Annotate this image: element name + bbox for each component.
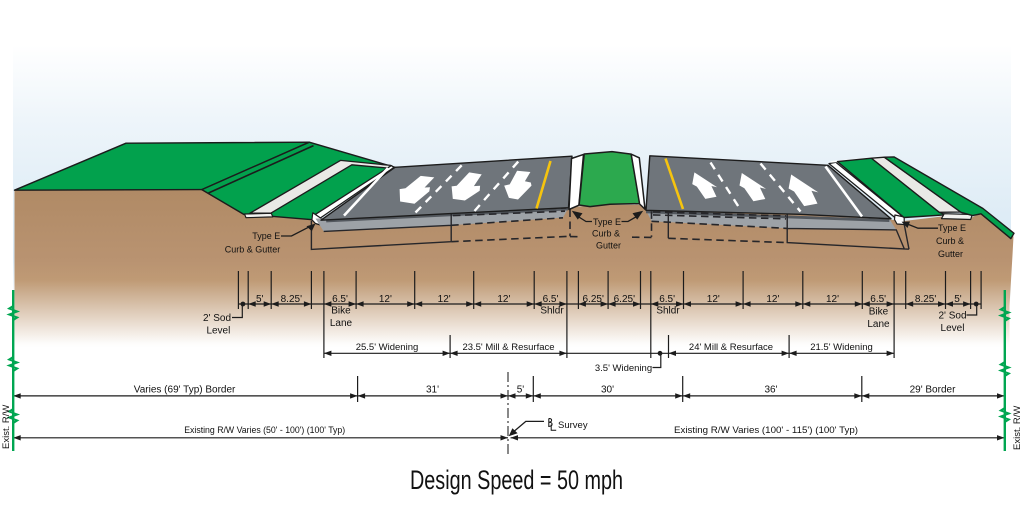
svg-text:31': 31' [426,385,439,396]
svg-text:12': 12' [497,294,510,305]
svg-text:Curb &: Curb & [592,229,620,239]
svg-text:12': 12' [707,294,720,305]
svg-text:8.25': 8.25' [281,294,302,305]
svg-text:Design Speed = 50 mph: Design Speed = 50 mph [410,465,623,495]
svg-text:6.25': 6.25' [583,294,604,305]
svg-text:Type E: Type E [938,223,966,233]
svg-text:Gutter: Gutter [938,249,963,259]
svg-text:Existing R/W Varies (50' - 100: Existing R/W Varies (50' - 100') (100' T… [184,425,345,436]
svg-text:Type E: Type E [593,217,621,227]
svg-text:6.5': 6.5' [332,294,348,305]
svg-text:Curb &: Curb & [936,236,964,246]
svg-text:8.25': 8.25' [915,294,936,305]
svg-text:29' Border: 29' Border [910,385,956,396]
svg-text:3.5' Widening: 3.5' Widening [595,363,652,374]
svg-text:Varies (69' Typ) Border: Varies (69' Typ) Border [134,385,236,396]
svg-text:5': 5' [517,385,525,396]
svg-text:5': 5' [954,294,962,305]
svg-text:12': 12' [379,294,392,305]
svg-text:Shldr: Shldr [540,306,564,317]
svg-text:Curb & Gutter: Curb & Gutter [225,245,281,255]
svg-text:5': 5' [256,294,264,305]
svg-text:12': 12' [826,294,839,305]
svg-text:30': 30' [601,385,614,396]
svg-text:Type E: Type E [252,231,280,241]
svg-text:6.5': 6.5' [543,294,559,305]
svg-text:6.5': 6.5' [659,294,675,305]
svg-text:Gutter: Gutter [596,241,621,251]
svg-text:24' Mill & Resurface: 24' Mill & Resurface [689,342,773,353]
svg-text:12': 12' [766,294,779,305]
svg-text:36': 36' [764,385,777,396]
svg-text:Level: Level [206,326,230,337]
svg-text:Exist. R/W: Exist. R/W [1,405,12,449]
svg-text:Survey: Survey [558,420,588,431]
svg-text:6.25': 6.25' [614,294,635,305]
svg-text:2' Sod: 2' Sod [203,313,231,324]
svg-text:Bike: Bike [869,307,889,318]
svg-text:23.5' Mill & Resurface: 23.5' Mill & Resurface [462,342,554,353]
svg-text:12': 12' [438,294,451,305]
svg-text:2' Sod: 2' Sod [938,311,966,322]
svg-text:6.5': 6.5' [870,294,886,305]
svg-text:Bike: Bike [331,306,351,317]
svg-text:Shldr: Shldr [656,306,680,317]
svg-text:25.5' Widening: 25.5' Widening [356,342,419,353]
svg-text:Level: Level [941,323,965,334]
svg-text:Exist. R/W: Exist. R/W [1012,406,1023,450]
svg-text:Existing R/W Varies (100' - 11: Existing R/W Varies (100' - 115') (100' … [674,425,858,436]
svg-text:Lane: Lane [330,318,353,329]
svg-text:21.5' Widening: 21.5' Widening [810,342,873,353]
svg-text:Lane: Lane [867,319,890,330]
